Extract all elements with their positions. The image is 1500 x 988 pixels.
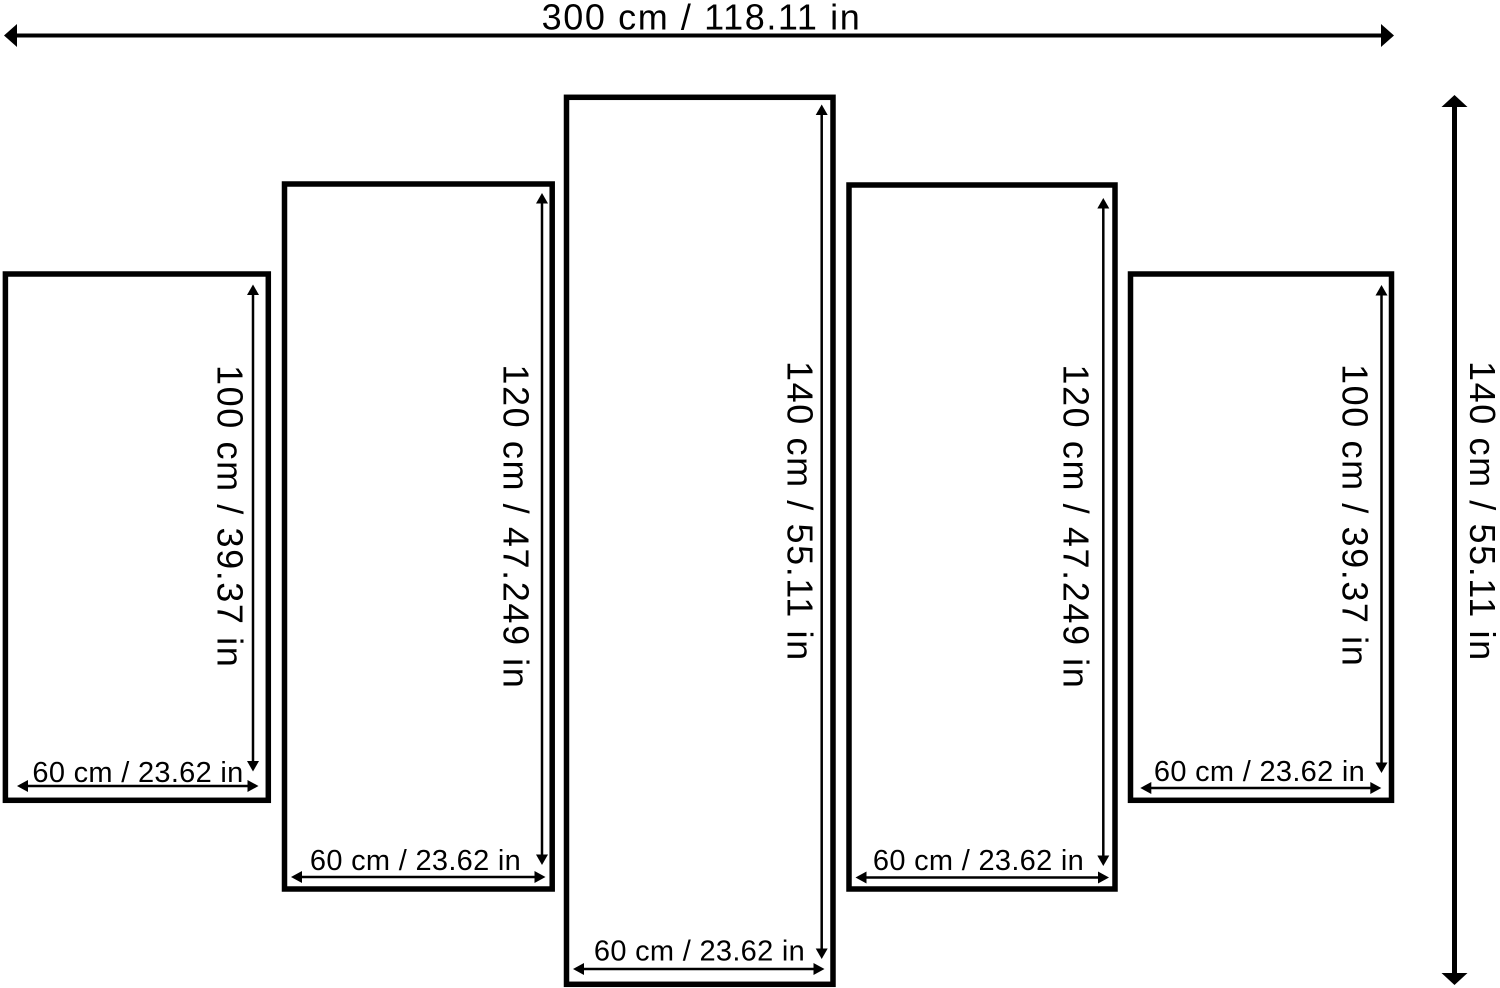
svg-text:60 cm / 23.62 in: 60 cm / 23.62 in — [310, 845, 521, 877]
svg-text:140 cm / 55.11 in: 140 cm / 55.11 in — [1462, 361, 1500, 662]
svg-text:60 cm / 23.62 in: 60 cm / 23.62 in — [594, 936, 805, 968]
svg-text:100 cm / 39.37 in: 100 cm / 39.37 in — [1335, 364, 1376, 667]
svg-text:60 cm / 23.62 in: 60 cm / 23.62 in — [1154, 756, 1365, 788]
svg-text:60 cm / 23.62 in: 60 cm / 23.62 in — [32, 757, 243, 789]
svg-text:100 cm / 39.37 in: 100 cm / 39.37 in — [210, 365, 251, 668]
svg-text:140 cm / 55.11 in: 140 cm / 55.11 in — [780, 361, 821, 662]
svg-text:60 cm / 23.62 in: 60 cm / 23.62 in — [873, 845, 1084, 877]
svg-text:300 cm / 118.11 in: 300 cm / 118.11 in — [542, 0, 862, 38]
svg-text:120 cm / 47.249 in: 120 cm / 47.249 in — [1056, 364, 1097, 689]
svg-text:120 cm / 47.249 in: 120 cm / 47.249 in — [496, 364, 537, 689]
